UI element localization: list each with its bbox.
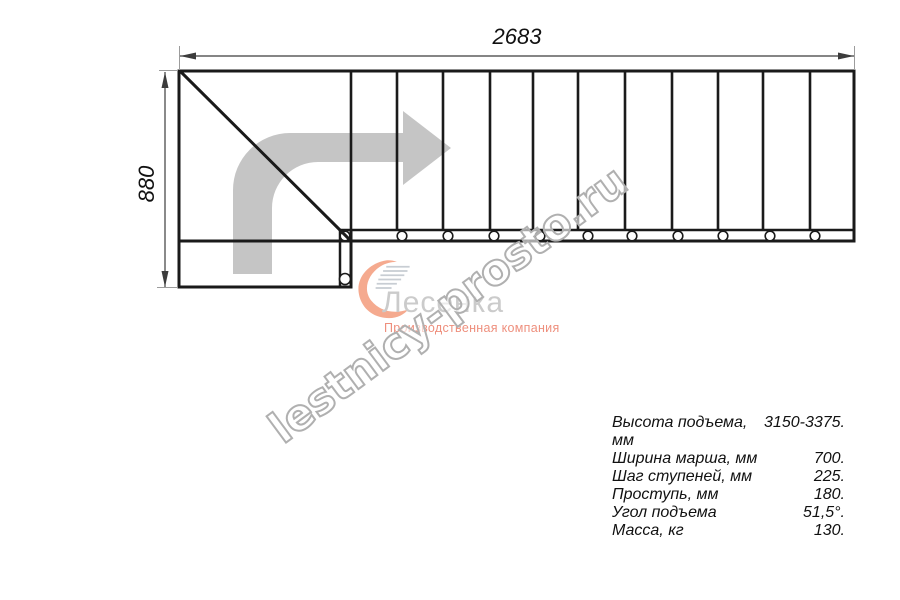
baluster-circle xyxy=(765,231,775,241)
dimension-arrowhead xyxy=(162,72,169,88)
dimension-arrowhead xyxy=(180,53,196,60)
spec-label: Угол подъема xyxy=(612,504,717,522)
dimension-height-label: 880 xyxy=(134,154,158,214)
spec-list: Высота подъема, мм 3150-3375. Ширина мар… xyxy=(612,414,845,540)
spec-value: 180. xyxy=(814,486,845,504)
dimension-arrowhead xyxy=(838,53,854,60)
spec-label: Масса, кг xyxy=(612,522,684,540)
spec-value: 3150-3375. xyxy=(764,414,845,450)
spec-row: Высота подъема, мм 3150-3375. xyxy=(612,414,845,450)
spec-label: Ширина марша, мм xyxy=(612,450,757,468)
spec-row: Масса, кг 130. xyxy=(612,522,845,540)
spec-row: Угол подъема 51,5°. xyxy=(612,504,845,522)
dimension-arrowhead xyxy=(162,271,169,287)
baluster-circle xyxy=(443,231,453,241)
spec-row: Ширина марша, мм 700. xyxy=(612,450,845,468)
company-logo: Лесенка Производственная компания xyxy=(346,252,586,342)
dimension-width-label: 2683 xyxy=(417,24,617,50)
baluster-circle xyxy=(627,231,637,241)
baluster-circle xyxy=(810,231,820,241)
spec-label: Проступь, мм xyxy=(612,486,718,504)
baluster-circle xyxy=(583,231,593,241)
baluster-circle xyxy=(718,231,728,241)
logo-name: Лесенка xyxy=(382,286,504,320)
spec-value: 700. xyxy=(814,450,845,468)
logo-tagline: Производственная компания xyxy=(384,321,560,335)
spec-label: Высота подъема, мм xyxy=(612,414,764,450)
logo-stairs-lines xyxy=(376,267,410,288)
baluster-circle xyxy=(397,231,407,241)
spec-row: Проступь, мм 180. xyxy=(612,486,845,504)
baluster-circle xyxy=(489,231,499,241)
spec-value: 225. xyxy=(814,468,845,486)
baluster-circle xyxy=(673,231,683,241)
drawing-canvas: 2683 880 Лесенка Производственная компан… xyxy=(0,0,900,600)
spec-value: 130. xyxy=(814,522,845,540)
spec-value: 51,5°. xyxy=(803,504,845,522)
baluster-circle xyxy=(535,231,545,241)
spec-label: Шаг ступеней, мм xyxy=(612,468,752,486)
direction-arrow xyxy=(233,111,451,274)
spec-row: Шаг ступеней, мм 225. xyxy=(612,468,845,486)
